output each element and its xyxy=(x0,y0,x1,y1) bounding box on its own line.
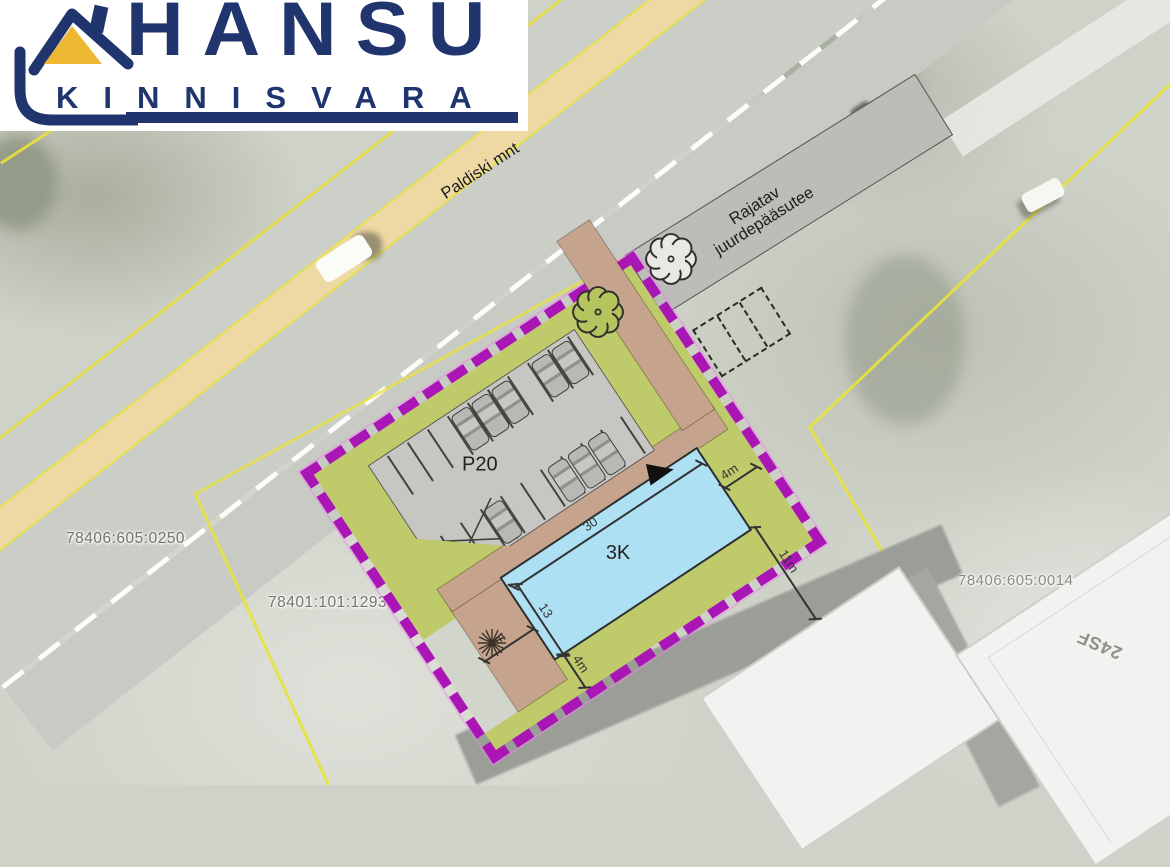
parking-stall-line xyxy=(427,429,454,468)
stall-divider xyxy=(739,302,768,347)
conifer-tree-icon xyxy=(476,627,508,659)
parking-count-label: P20 xyxy=(462,454,498,477)
logo-underline xyxy=(126,112,518,123)
logo-title: HANSU xyxy=(126,0,504,73)
parcel-number-center: 78401:101:1293 xyxy=(268,594,387,612)
company-logo: HANSU KINNISVARA xyxy=(0,0,528,131)
parking-stall-line xyxy=(520,483,546,521)
parking-stall-line xyxy=(387,456,414,495)
parcel-number-left: 78406:605:0250 xyxy=(66,530,185,548)
stall-divider xyxy=(717,316,746,361)
building-storeys-label: 3K xyxy=(606,542,630,565)
vegetation-patch xyxy=(845,255,965,425)
parking-stall-line xyxy=(407,442,434,481)
logo-subtitle: KINNISVARA xyxy=(56,80,497,116)
tree-icon xyxy=(645,233,697,285)
tree-icon-green xyxy=(572,286,624,338)
parcel-number-right: 78406:605:0014 xyxy=(958,572,1073,589)
